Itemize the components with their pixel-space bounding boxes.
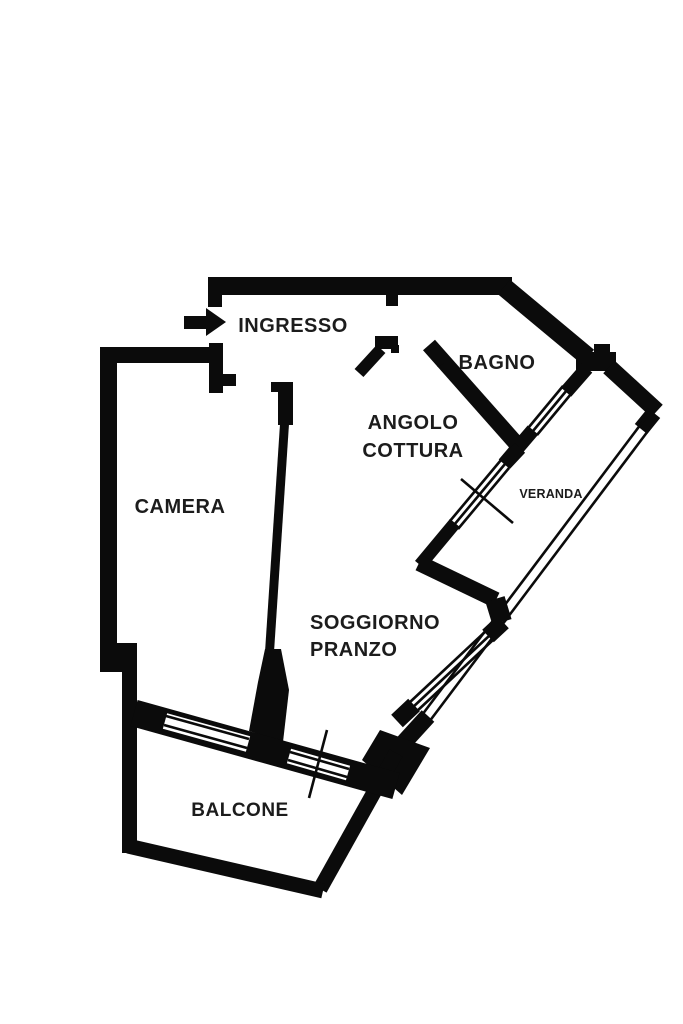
entrance-arrow-head — [206, 308, 226, 336]
window-bagno-veranda-line-2 — [533, 390, 567, 431]
wall-top-jamb-left — [208, 295, 222, 307]
camera-door-tick — [223, 374, 236, 386]
entrance-arrow-icon — [184, 308, 226, 336]
room-label-balcone: BALCONE — [191, 800, 288, 821]
partition-top-hook — [271, 382, 279, 392]
room-label-soggiorno-line1: SOGGIORNO — [310, 612, 440, 634]
camera-door-jamb — [209, 343, 223, 393]
partition-door-leaf — [249, 649, 289, 742]
window-bagno-veranda-line-3 — [537, 394, 571, 435]
window-soggiorno-line-2 — [412, 635, 490, 708]
walls — [100, 277, 657, 891]
room-label-bagno: BAGNO — [459, 352, 536, 374]
floor-plan-canvas: INGRESSO BAGNO ANGOLO COTTURA CAMERA VER… — [0, 0, 683, 1024]
bagno-door-leaf — [359, 349, 381, 373]
window-camera-balcone-opening — [165, 721, 248, 744]
soggiorno-window-cap-top — [488, 622, 503, 636]
veranda-end-wall — [419, 563, 496, 600]
wall-west — [100, 347, 117, 672]
balcone-bottom-rail — [128, 846, 323, 891]
room-label-angolo-cottura-line1: ANGOLO — [368, 412, 459, 434]
window-bagno-veranda-line-1 — [529, 386, 563, 427]
wall-ne-diagonal-1 — [504, 287, 588, 357]
window-soggiorno-line-3 — [416, 639, 494, 712]
room-label-angolo-cottura-line2: COTTURA — [362, 440, 463, 462]
floor-plan-page: INGRESSO BAGNO ANGOLO COTTURA CAMERA VER… — [0, 0, 683, 1024]
wall-ne-diagonal-2 — [609, 367, 657, 411]
veranda-east-glazing-line-2 — [426, 419, 657, 726]
window-soggiorno-line-1 — [409, 630, 487, 703]
room-label-soggiorno-line2: PRANZO — [310, 639, 397, 661]
soggiorno-window-cap-bottom — [397, 705, 414, 721]
wall-west-step — [100, 643, 137, 672]
wall-top — [208, 277, 512, 295]
camera-north-wall — [100, 347, 223, 363]
wall-top-jamb-mid — [386, 295, 398, 306]
room-label-ingresso: INGRESSO — [238, 315, 348, 337]
room-label-camera: CAMERA — [135, 496, 226, 518]
partition-top-cap — [278, 382, 293, 425]
veranda-west-wall-seg-a — [566, 368, 587, 392]
partition-thin-wall — [265, 424, 289, 652]
balcone-left-rail — [122, 660, 137, 853]
bagno-door-wall-tick — [391, 345, 399, 353]
wall-ne-horizontal-bump — [594, 344, 610, 354]
room-label-veranda: VERANDA — [519, 487, 582, 501]
entrance-arrow-shaft — [184, 316, 206, 329]
